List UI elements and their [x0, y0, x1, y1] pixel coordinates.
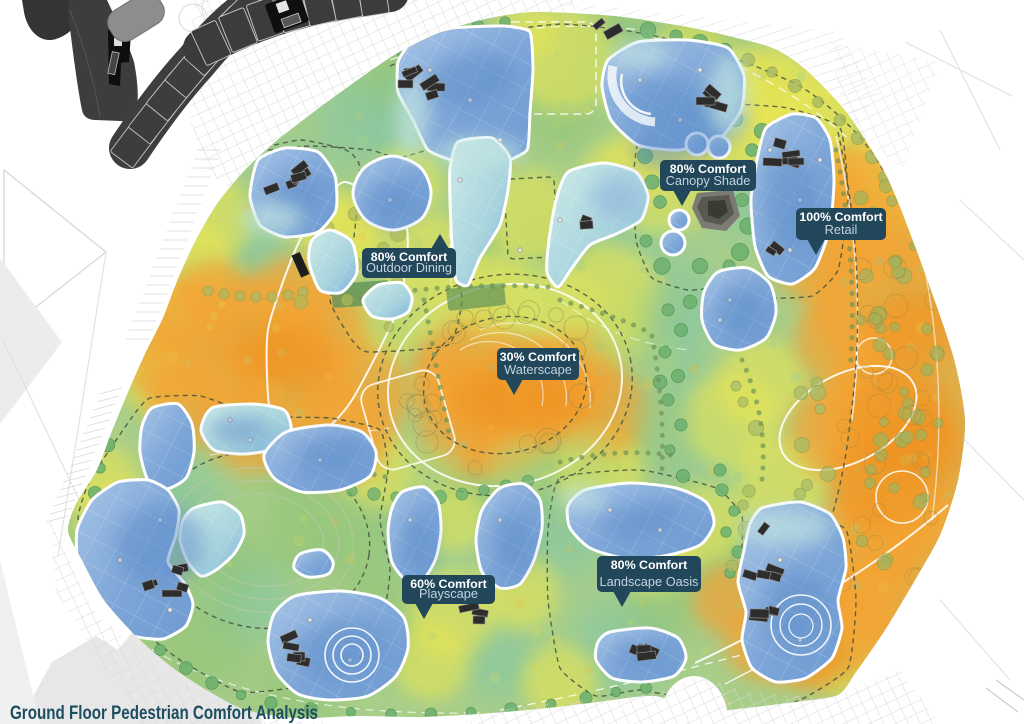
svg-text:Outdoor Dining: Outdoor Dining: [366, 260, 452, 275]
svg-text:80% Comfort: 80% Comfort: [611, 558, 687, 572]
svg-text:Waterscape: Waterscape: [504, 362, 572, 377]
svg-text:Landscape Oasis: Landscape Oasis: [600, 574, 699, 589]
svg-text:Playscape: Playscape: [419, 586, 478, 601]
svg-text:Canopy Shade: Canopy Shade: [666, 173, 751, 188]
svg-text:Ground Floor Pedestrian Comfor: Ground Floor Pedestrian Comfort Analysis: [10, 703, 318, 724]
svg-text:Retail: Retail: [825, 222, 858, 237]
